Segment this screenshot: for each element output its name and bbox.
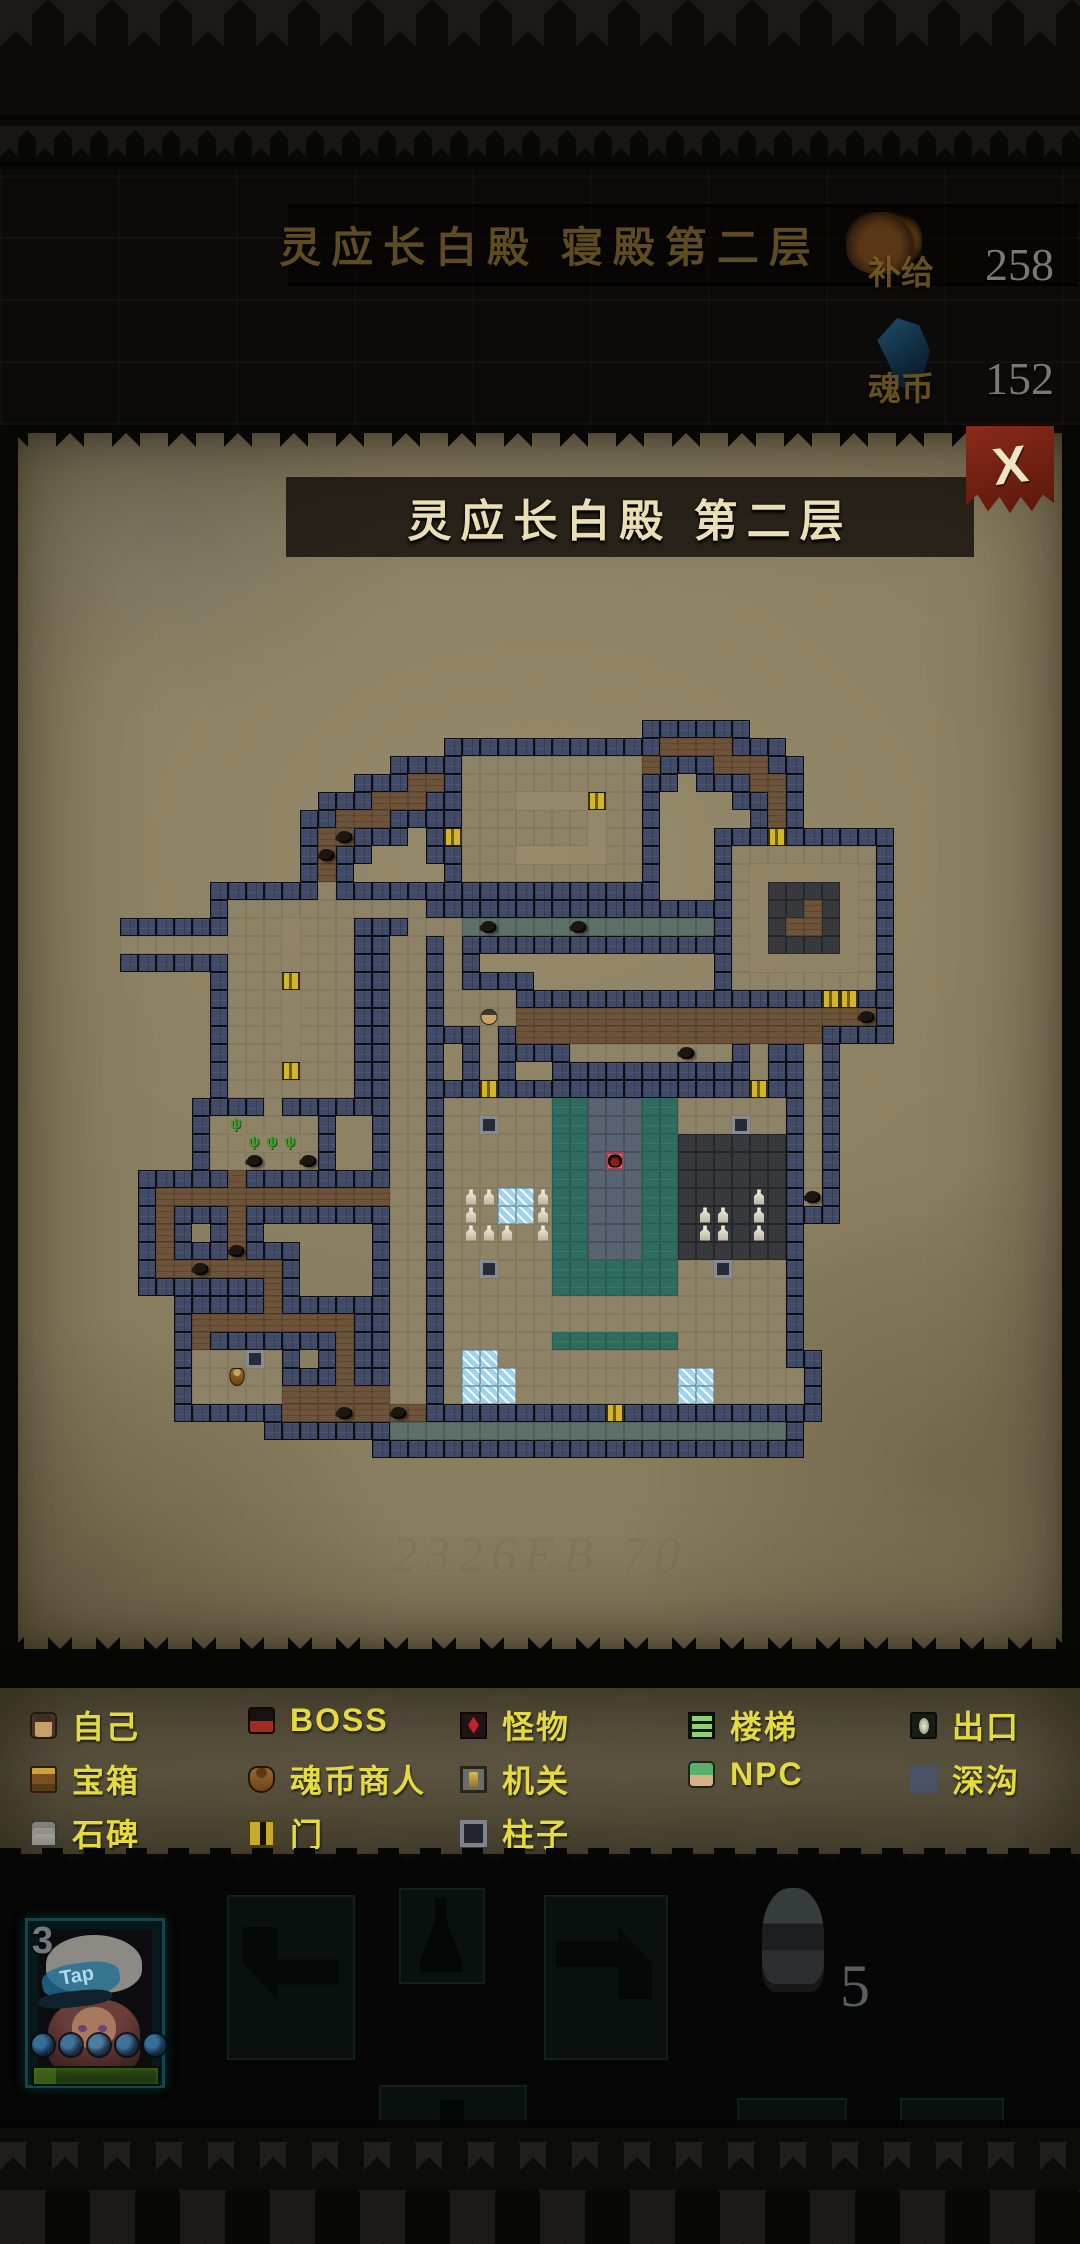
map-tile-tan-floor (462, 1260, 480, 1278)
map-tile-tan-floor (318, 990, 336, 1008)
map-tile-brown-floor (318, 1386, 336, 1404)
map-tile-tan-floor (498, 828, 516, 846)
map-tile-parchment (264, 1404, 282, 1422)
map-tile-tan-floor (516, 1098, 534, 1116)
map-tile-parchment (552, 1062, 570, 1080)
map-tile-tan-floor (804, 1080, 822, 1098)
map-tile-tan-floor (624, 792, 642, 810)
map-tile-tan-floor (606, 1296, 624, 1314)
map-tile-parchment (822, 1044, 840, 1062)
map-tile-brown-floor (426, 774, 444, 792)
map-tile-tan-floor (858, 954, 876, 972)
map-tile-tan-floor (552, 1314, 570, 1332)
map-tile-parchment (390, 828, 408, 846)
map-tile-stone-column (588, 1242, 606, 1260)
map-tile-parchment (372, 1116, 390, 1134)
map-tile-parchment (210, 972, 228, 990)
map-tile-brown-floor (192, 1188, 210, 1206)
map-tile-tan-floor (516, 1260, 534, 1278)
map-tile-parchment (192, 1206, 210, 1224)
map-tile-parchment (714, 846, 732, 864)
map-tile-tan-floor (588, 1044, 606, 1062)
map-tile-parchment (696, 720, 714, 738)
map-tile-dark-pit (822, 882, 840, 900)
map-tile-tan-floor (750, 972, 768, 990)
map-tile-brown-floor (606, 1026, 624, 1044)
map-tile-tan-floor (318, 918, 336, 936)
map-tile-parchment (786, 1080, 804, 1098)
map-tile-parchment (210, 1242, 228, 1260)
map-tile-brown-floor (552, 1008, 570, 1026)
map-tile-parchment (714, 936, 732, 954)
map-tile-wall (282, 990, 300, 1008)
map-tile-gray-corridor (606, 918, 624, 936)
map-tile-dark-pit (768, 1170, 786, 1188)
map-tile-parchment (210, 1026, 228, 1044)
map-tile-tan-floor (624, 828, 642, 846)
map-tile-brown-floor (300, 1314, 318, 1332)
map-tile-parchment (876, 936, 894, 954)
map-tile-parchment (876, 972, 894, 990)
map-tile-parchment (642, 720, 660, 738)
map-tile-parchment (516, 1404, 534, 1422)
map-tile-teal-floor (570, 1206, 588, 1224)
map-tile-parchment (804, 1206, 822, 1224)
map-tile-ice (462, 1368, 480, 1386)
map-tile-tan-floor (786, 846, 804, 864)
map-tile-tan-floor (498, 1008, 516, 1026)
map-tile-dark-pit (768, 1242, 786, 1260)
map-tile-brown-floor (336, 1368, 354, 1386)
map-tile-tan-floor (300, 1134, 318, 1152)
map-tile-gray-corridor (732, 1422, 750, 1440)
map-tile-parchment (426, 1206, 444, 1224)
map-tile-tan-floor (516, 756, 534, 774)
map-tile-tan-floor (534, 1350, 552, 1368)
map-tile-tan-floor (480, 1170, 498, 1188)
map-tile-tan-floor (228, 1080, 246, 1098)
map-tile-tan-floor (480, 1026, 498, 1044)
map-tile-tan-floor (228, 954, 246, 972)
map-tile-parchment (714, 1062, 732, 1080)
map-icon-monster (392, 1407, 407, 1419)
map-tile-parchment (354, 918, 372, 936)
map-tile-brown-floor (228, 1314, 246, 1332)
map-tile-ice (462, 1350, 480, 1368)
map-tile-tan-floor (750, 1314, 768, 1332)
map-tile-dark-pit (822, 918, 840, 936)
map-tile-tan-floor (444, 1170, 462, 1188)
map-tile-wall (516, 846, 534, 864)
map-tile-tan-floor (444, 1350, 462, 1368)
map-tile-tan-floor (534, 1368, 552, 1386)
map-tile-tan-floor (804, 1062, 822, 1080)
map-tile-parchment (822, 1134, 840, 1152)
map-tile-tan-floor (408, 1242, 426, 1260)
map-tile-parchment (714, 828, 732, 846)
soul-coin-value: 152 (985, 352, 1054, 405)
map-tile-door (282, 972, 300, 990)
map-tile-tan-floor (678, 1278, 696, 1296)
map-tile-parchment (282, 1278, 300, 1296)
map-tile-tan-floor (642, 1314, 660, 1332)
map-tile-tan-floor (678, 1314, 696, 1332)
map-tile-pillar (480, 1116, 498, 1134)
map-tile-parchment (174, 1386, 192, 1404)
map-tile-brown-floor (210, 1188, 228, 1206)
map-tile-tan-floor (462, 864, 480, 882)
map-tile-gray-corridor (696, 918, 714, 936)
map-tile-parchment (246, 1296, 264, 1314)
map-tile-tan-floor (282, 1152, 300, 1170)
map-tile-tan-floor (444, 972, 462, 990)
map-tile-tan-floor (570, 1386, 588, 1404)
map-tile-brown-floor (678, 1026, 696, 1044)
map-tile-parchment (372, 828, 390, 846)
map-tile-tan-floor (390, 1080, 408, 1098)
map-tile-tan-floor (606, 1386, 624, 1404)
map-tile-tan-floor (390, 954, 408, 972)
map-tile-parchment (426, 1242, 444, 1260)
map-tile-tan-floor (318, 1044, 336, 1062)
map-tile-tan-floor (714, 1296, 732, 1314)
map-tile-parchment (228, 1332, 246, 1350)
map-tile-tan-floor (570, 756, 588, 774)
map-tile-tan-floor (678, 1296, 696, 1314)
map-tile-wall (534, 792, 552, 810)
map-tile-parchment (570, 900, 588, 918)
map-tile-parchment (660, 756, 678, 774)
map-tile-parchment (138, 918, 156, 936)
map-tile-gray-corridor (570, 1422, 588, 1440)
map-tile-parchment (786, 1404, 804, 1422)
map-tile-dark-pit (732, 1206, 750, 1224)
map-tile-tan-floor (282, 1080, 300, 1098)
map-icon-monster (860, 1011, 875, 1023)
map-tile-parchment (876, 954, 894, 972)
map-tile-tan-floor (678, 1098, 696, 1116)
map-tile-brown-floor (210, 1260, 228, 1278)
map-tile-tan-floor (714, 1044, 732, 1062)
map-tile-brown-floor (840, 1008, 858, 1026)
map-tile-tan-floor (390, 990, 408, 1008)
map-tile-tan-floor (390, 900, 408, 918)
map-tile-parchment (282, 1350, 300, 1368)
map-tile-tan-floor (696, 1350, 714, 1368)
map-tile-tan-floor (264, 954, 282, 972)
map-tile-parchment (210, 1404, 228, 1422)
map-tile-tan-floor (750, 1098, 768, 1116)
map-tile-parchment (264, 1422, 282, 1440)
energy-orb (86, 2032, 112, 2058)
map-tile-parchment (606, 1440, 624, 1458)
map-tile-parchment (426, 1350, 444, 1368)
map-tile-parchment (390, 1440, 408, 1458)
map-tile-wall (516, 792, 534, 810)
map-tile-tan-floor (264, 1386, 282, 1404)
map-tile-tan-floor (390, 1314, 408, 1332)
map-tile-tan-floor (606, 792, 624, 810)
legend-label: BOSS (290, 1702, 389, 1739)
map-tile-brown-floor (282, 1404, 300, 1422)
legend-label: 宝箱 (72, 1756, 140, 1802)
map-tile-parchment (336, 1422, 354, 1440)
map-tile-parchment (552, 1440, 570, 1458)
map-tile-teal-floor (552, 1260, 570, 1278)
map-tile-parchment (786, 1224, 804, 1242)
map-tile-wall (552, 792, 570, 810)
map-tile-tan-floor (516, 1116, 534, 1134)
map-tile-brown-floor (354, 1386, 372, 1404)
map-tile-brown-floor (318, 1314, 336, 1332)
map-tile-parchment (120, 954, 138, 972)
map-tile-teal-floor (642, 1170, 660, 1188)
map-tile-gray-corridor (588, 1422, 606, 1440)
map-tile-tan-floor (390, 1206, 408, 1224)
map-tile-parchment (426, 792, 444, 810)
map-tile-tan-floor (516, 1296, 534, 1314)
map-tile-parchment (426, 1332, 444, 1350)
map-tile-tan-floor (192, 1368, 210, 1386)
map-tile-tan-floor (858, 864, 876, 882)
map-tile-tan-floor (336, 1008, 354, 1026)
supplies-label: 补给 (868, 246, 934, 294)
legend-label: 魂币商人 (290, 1756, 426, 1802)
map-tile-tan-floor (264, 1098, 282, 1116)
map-tile-wall (282, 1044, 300, 1062)
map-tile-brown-floor (624, 1008, 642, 1026)
map-tile-tan-floor (246, 936, 264, 954)
map-tile-parchment (750, 810, 768, 828)
map-tile-wall (534, 846, 552, 864)
map-tile-tan-floor (282, 900, 300, 918)
map-tile-tan-floor (192, 1386, 210, 1404)
map-tile-tan-floor (516, 1314, 534, 1332)
map-tile-brown-floor (768, 810, 786, 828)
map-tile-parchment (858, 990, 876, 1008)
map-tile-brown-floor (336, 1188, 354, 1206)
map-tile-teal-floor (660, 1098, 678, 1116)
map-tile-parchment (696, 774, 714, 792)
map-tile-tan-floor (318, 882, 336, 900)
map-tile-stone-column (588, 1206, 606, 1224)
map-tile-tan-floor (588, 1368, 606, 1386)
map-tile-tan-floor (750, 846, 768, 864)
map-tile-teal-floor (642, 1152, 660, 1170)
map-tile-dark-pit (768, 1224, 786, 1242)
map-tile-parchment (318, 1152, 336, 1170)
map-tile-tan-floor (732, 954, 750, 972)
map-tile-dark-pit (696, 1152, 714, 1170)
map-tile-ice (678, 1386, 696, 1404)
map-tile-teal-floor (660, 1206, 678, 1224)
map-tile-teal-floor (552, 1152, 570, 1170)
map-tile-gray-corridor (642, 918, 660, 936)
map-tile-tan-floor (390, 1350, 408, 1368)
map-tile-parchment (660, 900, 678, 918)
map-tile-parchment (570, 936, 588, 954)
map-tile-stone-column (624, 1116, 642, 1134)
map-tile-tan-floor (516, 774, 534, 792)
map-tile-tan-floor (300, 1116, 318, 1134)
map-tile-parchment (642, 1404, 660, 1422)
map-tile-teal-floor (570, 1116, 588, 1134)
map-tile-gray-corridor (606, 1422, 624, 1440)
map-tile-tan-floor (480, 1152, 498, 1170)
map-tile-tan-floor (390, 1224, 408, 1242)
card-count: 3 (32, 1920, 53, 1963)
map-tile-dark-pit (786, 882, 804, 900)
map-tile-tan-floor (606, 828, 624, 846)
map-tile-dark-pit (750, 1134, 768, 1152)
map-tile-parchment (534, 1080, 552, 1098)
map-tile-brown-floor (642, 1008, 660, 1026)
map-tile-parchment (732, 738, 750, 756)
map-tile-wall (768, 954, 786, 972)
soul-coin-label: 魂币 (868, 362, 934, 410)
map-tile-brown-floor (156, 1242, 174, 1260)
map-tile-tan-floor (444, 1098, 462, 1116)
map-tile-tan-floor (588, 864, 606, 882)
map-tile-tan-floor (732, 1098, 750, 1116)
map-tile-brown-floor (732, 1026, 750, 1044)
map-tile-parchment (822, 1098, 840, 1116)
map-tile-teal-floor (570, 1134, 588, 1152)
map-tile-tan-floor (408, 1062, 426, 1080)
map-tile-parchment (228, 1296, 246, 1314)
map-tile-tan-floor (750, 1062, 768, 1080)
map-tile-parchment (822, 1206, 840, 1224)
map-tile-stone-column (606, 1098, 624, 1116)
map-tile-tan-floor (246, 1368, 264, 1386)
map-tile-parchment (750, 828, 768, 846)
map-tile-tan-floor (498, 1314, 516, 1332)
map-tile-tan-floor (336, 990, 354, 1008)
map-tile-parchment (372, 1296, 390, 1314)
map-tile-tan-floor (678, 1350, 696, 1368)
map-tile-brown-floor (714, 1026, 732, 1044)
map-tile-brown-floor (156, 1260, 174, 1278)
map-tile-tan-floor (624, 774, 642, 792)
map-tile-parchment (192, 1098, 210, 1116)
map-tile-parchment (174, 1350, 192, 1368)
map-tile-parchment (210, 1224, 228, 1242)
monster-icon (460, 1712, 487, 1739)
map-tile-tan-floor (444, 1008, 462, 1026)
map-tile-teal-floor (570, 1242, 588, 1260)
map-tile-tan-floor (822, 972, 840, 990)
map-tile-brown-floor (354, 1404, 372, 1422)
map-tile-parchment (750, 1404, 768, 1422)
map-tile-brown-floor (228, 1188, 246, 1206)
map-tile-parchment (246, 1242, 264, 1260)
map-tile-tan-floor (444, 1134, 462, 1152)
map-tile-tan-floor (822, 846, 840, 864)
map-tile-parchment (624, 1404, 642, 1422)
map-tile-ice (516, 1206, 534, 1224)
map-tile-parchment (210, 1008, 228, 1026)
map-tile-tan-floor (408, 954, 426, 972)
map-tile-parchment (462, 738, 480, 756)
map-tile-tan-floor (462, 1008, 480, 1026)
map-tile-tan-floor (606, 864, 624, 882)
map-tile-tan-floor (390, 1296, 408, 1314)
map-tile-parchment (534, 882, 552, 900)
map-tile-parchment (624, 1080, 642, 1098)
map-tile-tan-floor (570, 1350, 588, 1368)
map-tile-parchment (876, 1008, 894, 1026)
map-tile-tan-floor (246, 918, 264, 936)
map-tile-tan-floor (498, 864, 516, 882)
map-tile-pillar (480, 1260, 498, 1278)
map-tile-brown-floor (264, 1278, 282, 1296)
map-tile-brown-floor (228, 1206, 246, 1224)
map-tile-parchment (822, 1188, 840, 1206)
map-tile-parchment (714, 1440, 732, 1458)
map-tile-tan-floor (606, 756, 624, 774)
map-tile-tan-floor (552, 864, 570, 882)
map-tile-tan-floor (768, 1314, 786, 1332)
map-tile-tan-floor (498, 1350, 516, 1368)
map-tile-tan-floor (318, 1062, 336, 1080)
map-tile-tan-floor (606, 1044, 624, 1062)
map-tile-brown-floor (732, 1008, 750, 1026)
map-tile-parchment (372, 1080, 390, 1098)
map-tile-parchment (354, 1008, 372, 1026)
map-tile-tan-floor (444, 1260, 462, 1278)
energy-orb (30, 2032, 56, 2058)
map-tile-tan-floor (156, 936, 174, 954)
map-tile-gray-corridor (534, 1422, 552, 1440)
map-tile-tan-floor (552, 774, 570, 792)
map-tile-tan-floor (804, 1116, 822, 1134)
map-tile-wall (588, 846, 606, 864)
map-tile-tan-floor (462, 792, 480, 810)
map-tile-ice (498, 1206, 516, 1224)
map-tile-brown-floor (318, 828, 336, 846)
map-tile-wall (750, 900, 768, 918)
map-tile-parchment (732, 792, 750, 810)
map-tile-brown-floor (372, 1386, 390, 1404)
map-tile-tan-floor (264, 972, 282, 990)
map-tile-parchment (822, 1026, 840, 1044)
map-tile-parchment (372, 1008, 390, 1026)
map-tile-tan-floor (768, 1350, 786, 1368)
map-tile-parchment (678, 1404, 696, 1422)
map-tile-tan-floor (498, 846, 516, 864)
map-tile-parchment (822, 1062, 840, 1080)
map-tile-tan-floor (408, 1386, 426, 1404)
map-tile-parchment (660, 1080, 678, 1098)
map-tile-parchment (786, 1314, 804, 1332)
map-tile-brown-floor (516, 1026, 534, 1044)
map-tile-parchment (642, 828, 660, 846)
map-tile-tan-floor (408, 1098, 426, 1116)
map-tile-parchment (444, 1080, 462, 1098)
map-tile-teal-floor (552, 1134, 570, 1152)
map-tile-parchment (534, 1404, 552, 1422)
map-tile-brown-floor (606, 1008, 624, 1026)
map-tile-parchment (552, 882, 570, 900)
map-tile-parchment (300, 1368, 318, 1386)
map-tile-tan-floor (534, 1170, 552, 1188)
map-tile-tan-floor (642, 1386, 660, 1404)
map-tile-brown-floor (318, 1404, 336, 1422)
map-tile-parchment (786, 828, 804, 846)
map-tile-parchment (498, 1440, 516, 1458)
legend-item-chest: 宝箱 (30, 1756, 140, 1802)
map-tile-dark-pit (714, 1188, 732, 1206)
